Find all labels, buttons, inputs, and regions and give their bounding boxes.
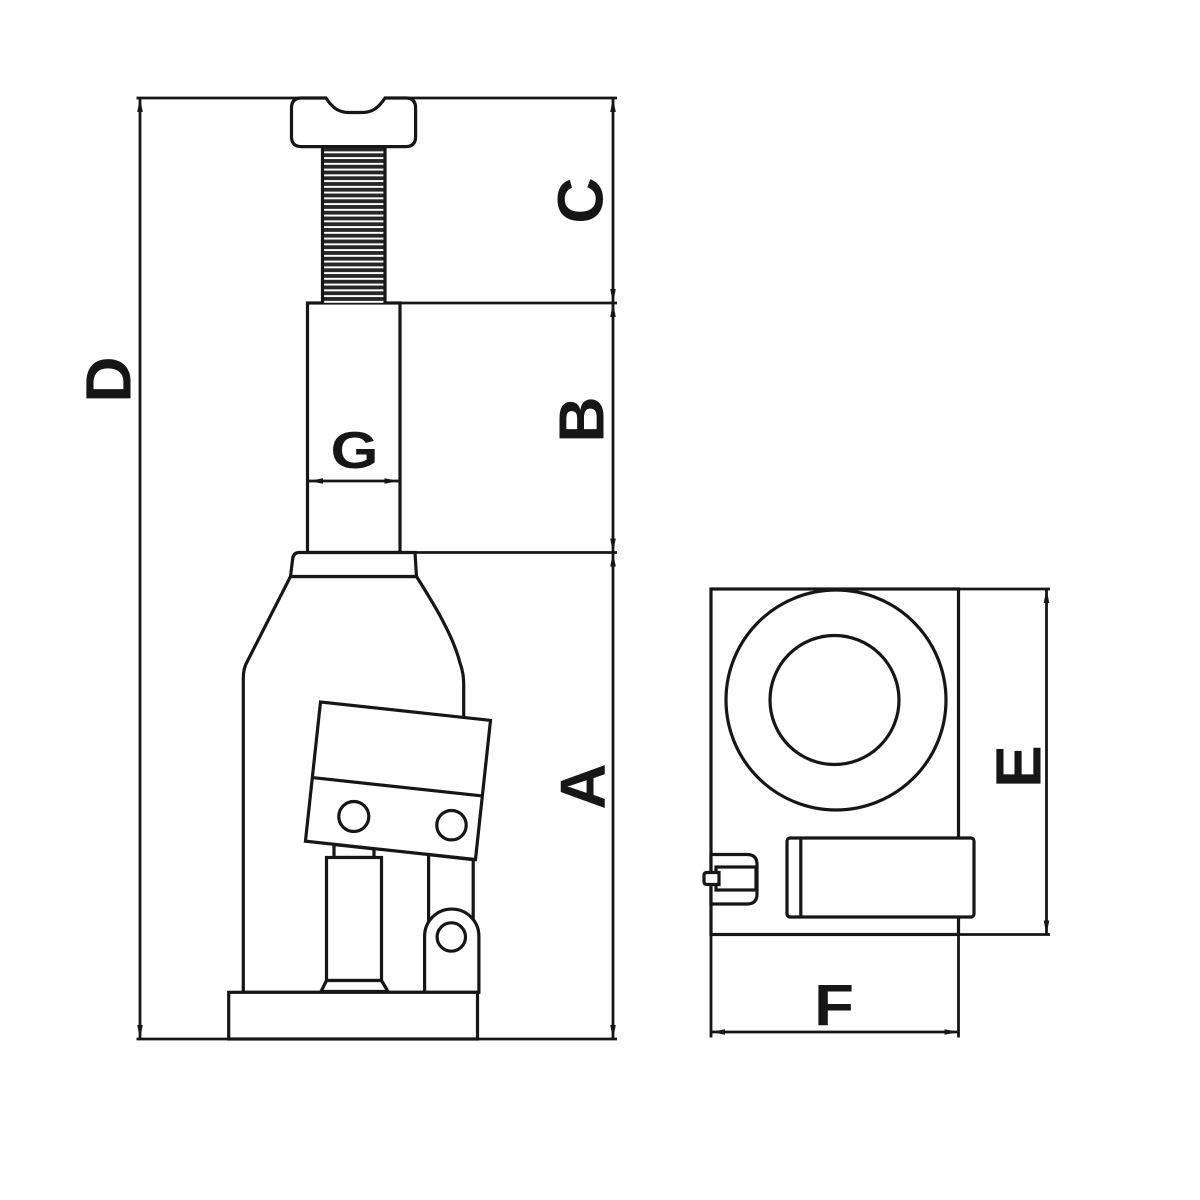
- svg-text:A: A: [547, 763, 619, 809]
- svg-text:D: D: [73, 356, 145, 402]
- svg-text:C: C: [545, 177, 617, 223]
- svg-text:B: B: [546, 396, 618, 442]
- svg-text:F: F: [814, 974, 854, 1039]
- svg-text:E: E: [983, 745, 1055, 788]
- svg-text:G: G: [331, 422, 379, 480]
